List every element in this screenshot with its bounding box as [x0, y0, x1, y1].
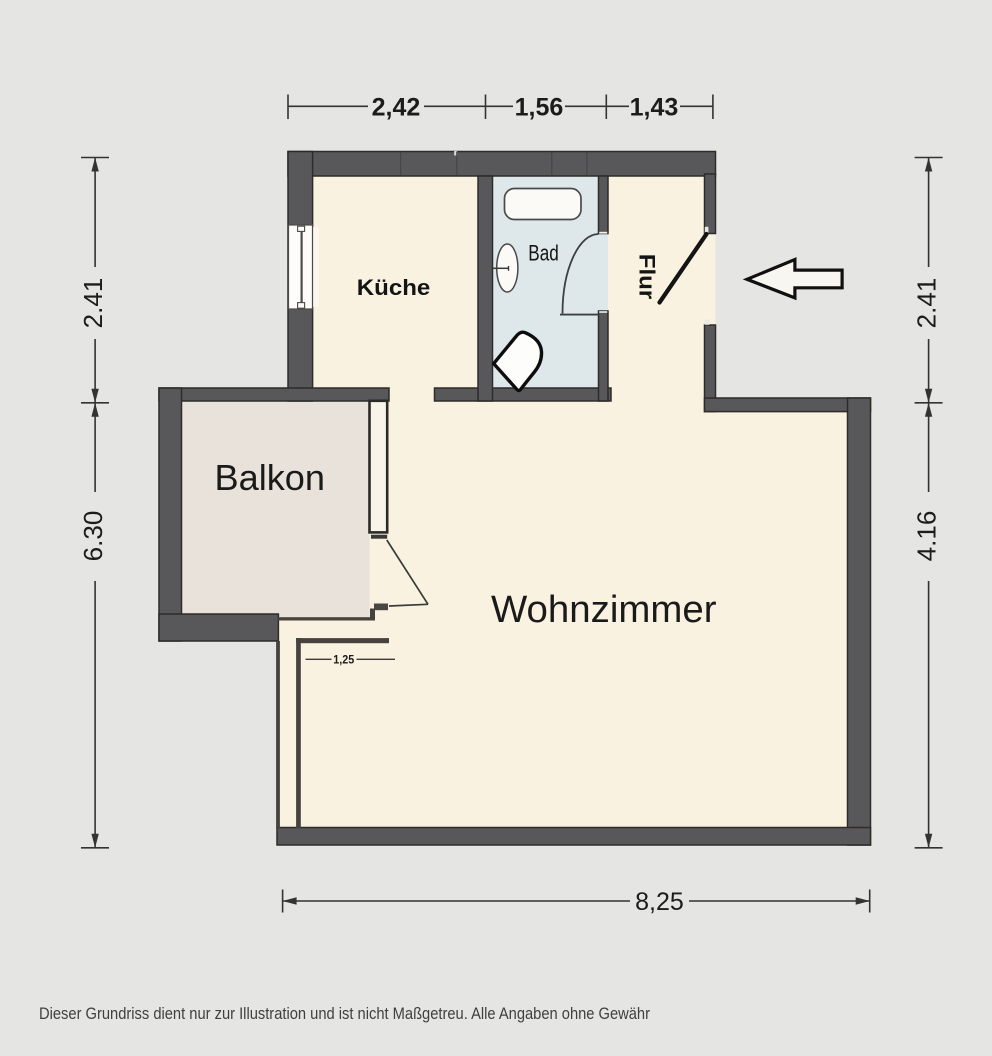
- svg-text:Balkon: Balkon: [215, 457, 326, 498]
- svg-text:Küche: Küche: [357, 275, 431, 300]
- svg-text:2,42: 2,42: [372, 94, 421, 122]
- svg-text:1,25: 1,25: [333, 653, 354, 667]
- svg-text:Flur: Flur: [635, 254, 660, 300]
- svg-text:4.16: 4.16: [912, 511, 942, 562]
- svg-text:2.41: 2.41: [78, 278, 108, 329]
- svg-text:Wohnzimmer: Wohnzimmer: [491, 589, 717, 631]
- svg-text:Dieser Grundriss dient nur zur: Dieser Grundriss dient nur zur Illustrat…: [39, 1005, 651, 1023]
- svg-text:1,56: 1,56: [515, 94, 564, 122]
- svg-text:Bad: Bad: [528, 240, 559, 265]
- svg-text:6.30: 6.30: [78, 511, 108, 562]
- svg-text:2.41: 2.41: [912, 278, 942, 329]
- svg-text:8,25: 8,25: [635, 888, 684, 916]
- svg-text:1,43: 1,43: [630, 94, 679, 122]
